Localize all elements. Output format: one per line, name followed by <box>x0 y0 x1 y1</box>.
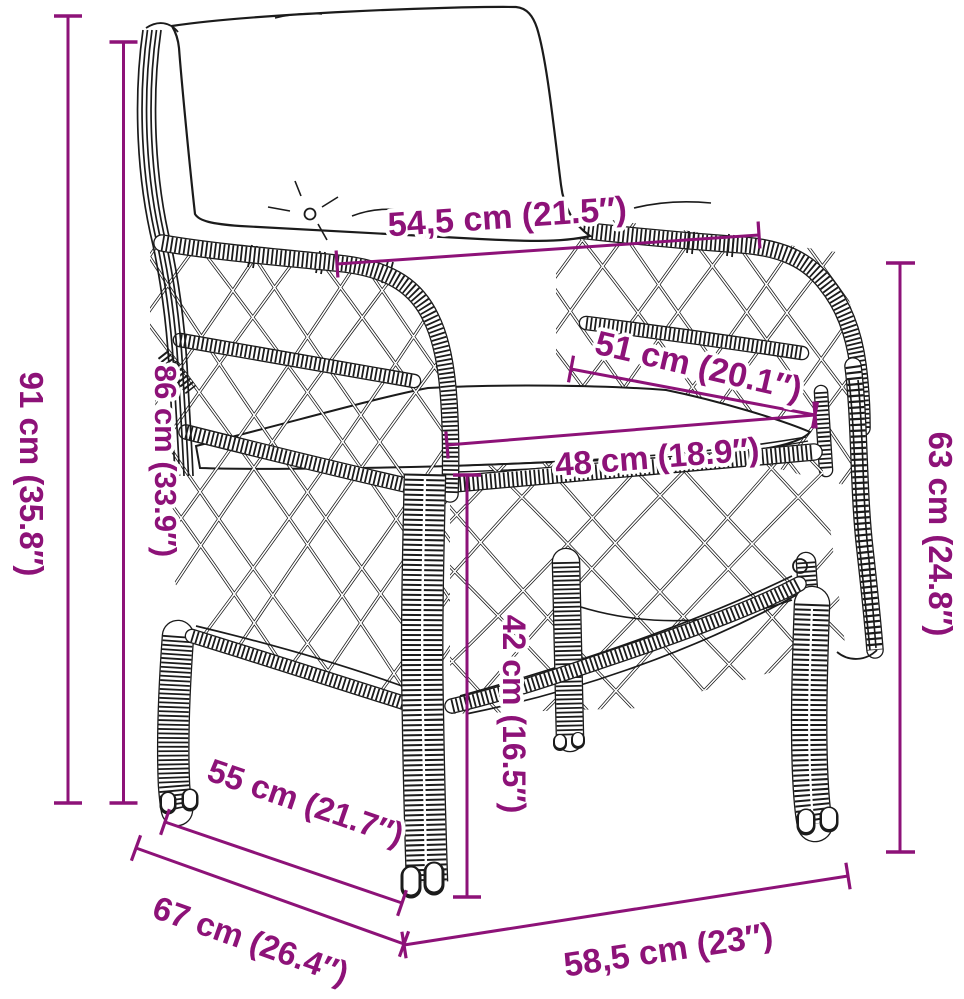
svg-text:42 cm (16.5″): 42 cm (16.5″) <box>496 615 532 814</box>
svg-text:86 cm (33.9″): 86 cm (33.9″) <box>148 365 183 557</box>
svg-text:63 cm (24.8″): 63 cm (24.8″) <box>922 432 959 637</box>
svg-text:91 cm (35.8″): 91 cm (35.8″) <box>13 372 50 577</box>
